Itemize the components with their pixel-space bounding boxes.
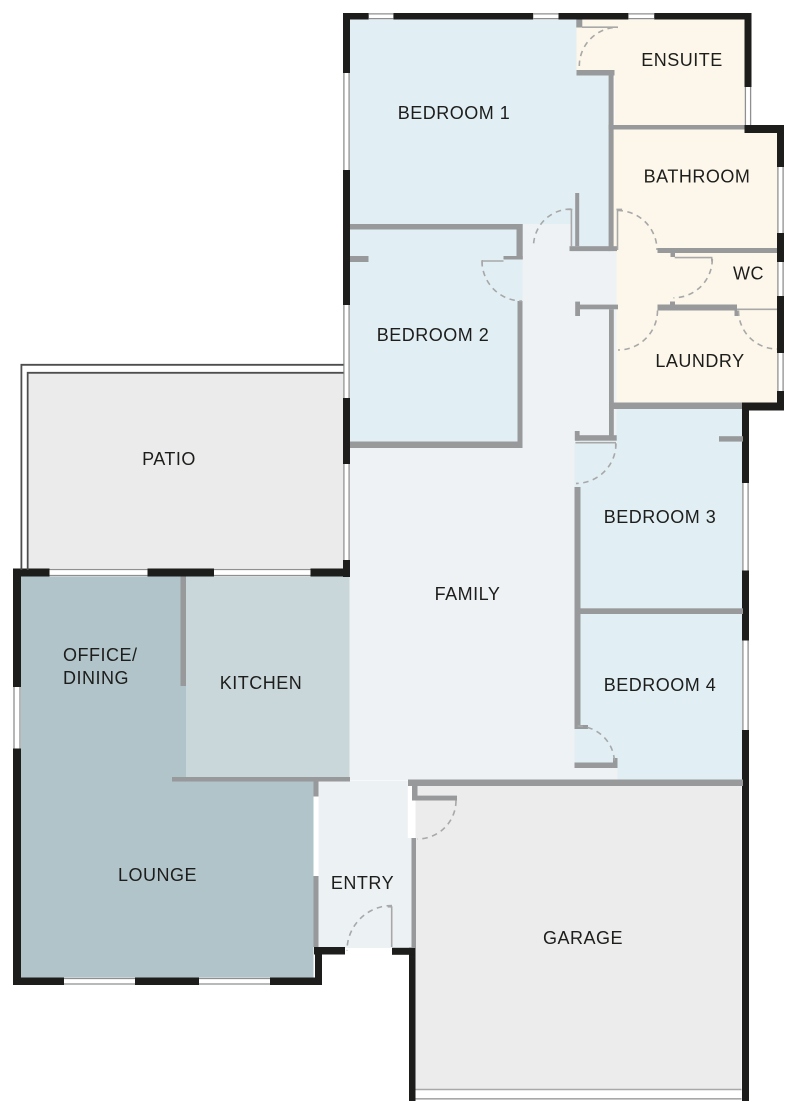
svg-text:LAUNDRY: LAUNDRY	[655, 351, 744, 371]
svg-text:BEDROOM 1: BEDROOM 1	[398, 103, 511, 123]
svg-text:BATHROOM: BATHROOM	[644, 167, 751, 187]
svg-text:BEDROOM 2: BEDROOM 2	[377, 325, 490, 345]
svg-text:PATIO: PATIO	[142, 449, 196, 469]
svg-text:ENSUITE: ENSUITE	[641, 50, 723, 70]
svg-text:ENTRY: ENTRY	[331, 873, 394, 893]
svg-text:BEDROOM 4: BEDROOM 4	[604, 675, 717, 695]
svg-text:WC: WC	[733, 264, 764, 284]
svg-text:FAMILY: FAMILY	[435, 584, 501, 604]
svg-text:DINING: DINING	[63, 668, 129, 688]
svg-text:BEDROOM 3: BEDROOM 3	[604, 507, 717, 527]
svg-text:LOUNGE: LOUNGE	[118, 865, 197, 885]
svg-text:KITCHEN: KITCHEN	[220, 673, 303, 693]
svg-text:OFFICE/: OFFICE/	[63, 645, 138, 665]
svg-text:GARAGE: GARAGE	[543, 928, 623, 948]
